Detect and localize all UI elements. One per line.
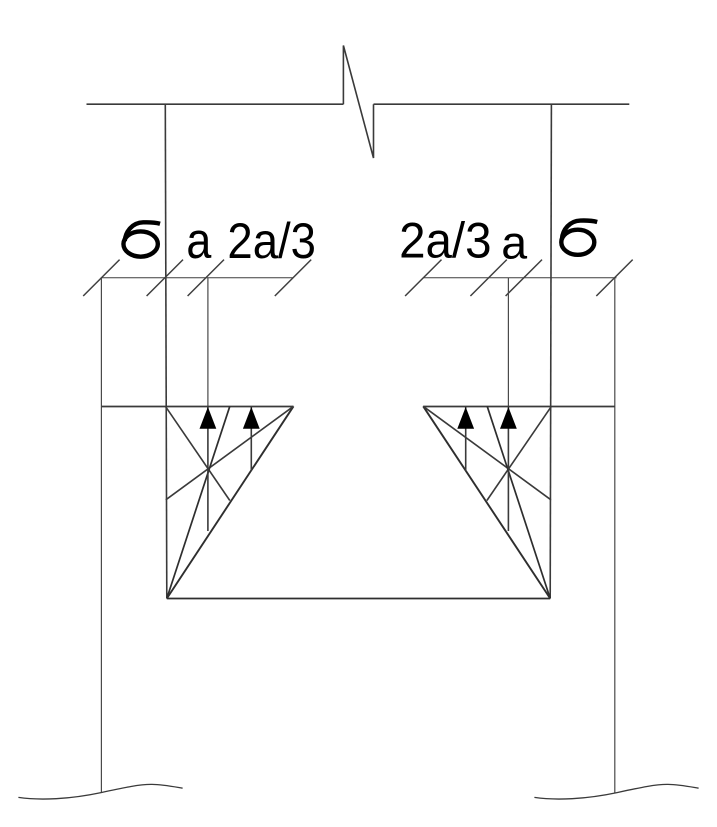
svg-text:а: а	[186, 213, 211, 269]
svg-text:а: а	[501, 216, 527, 268]
svg-text:2а/3: 2а/3	[399, 213, 491, 268]
svg-text:2а/3: 2а/3	[227, 214, 316, 269]
